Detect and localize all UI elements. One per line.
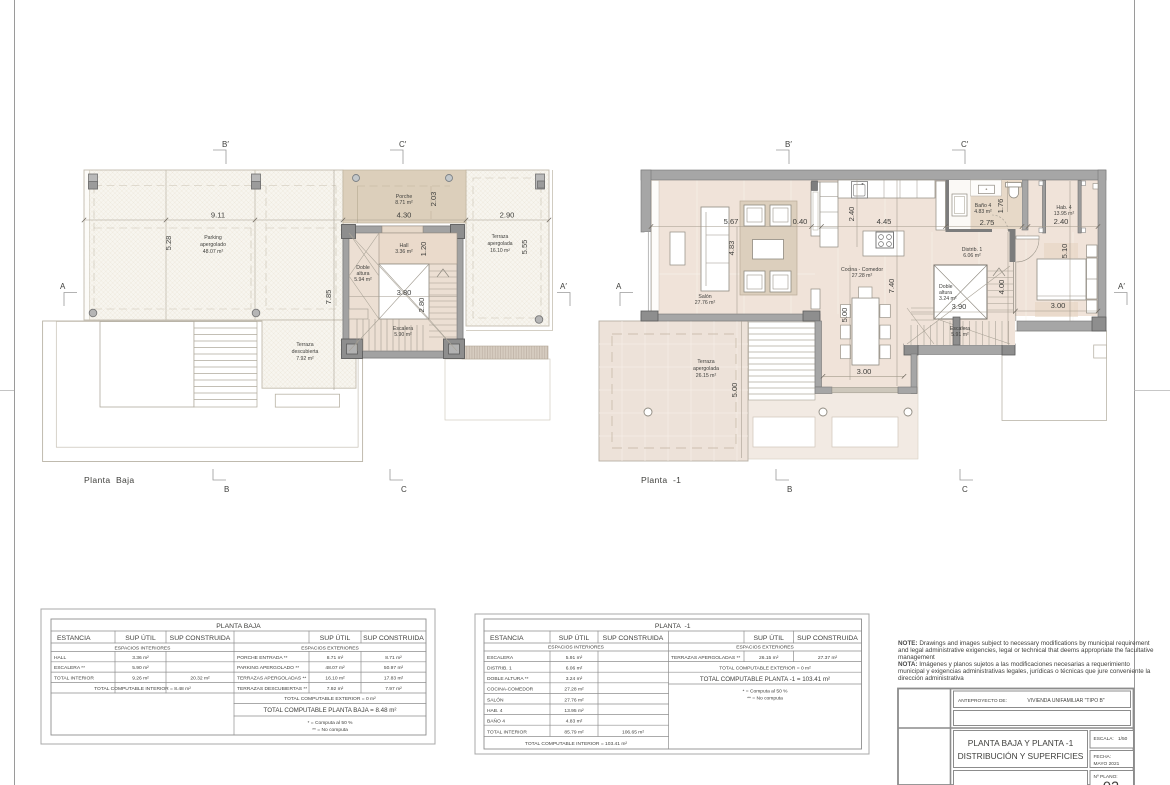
- svg-text:1.20: 1.20: [419, 242, 428, 257]
- svg-text:SALÓN: SALÓN: [487, 696, 504, 703]
- svg-text:BAÑO 4: BAÑO 4: [487, 718, 505, 725]
- svg-text:106.65 m²: 106.65 m²: [622, 729, 644, 735]
- svg-text:TOTAL COMPUTABLE EXTERIOR = 0: TOTAL COMPUTABLE EXTERIOR = 0 m²: [284, 696, 376, 702]
- svg-text:SUP ÚTIL: SUP ÚTIL: [320, 633, 351, 642]
- svg-text:PLANTA BAJA: PLANTA BAJA: [216, 623, 261, 630]
- svg-text:4.00: 4.00: [997, 280, 1006, 295]
- svg-text:ESPACIOS EXTERIORES: ESPACIOS EXTERIORES: [736, 645, 794, 651]
- svg-text:0.40: 0.40: [793, 217, 808, 226]
- svg-text:8.71 m²: 8.71 m²: [385, 655, 402, 661]
- svg-text:50.97 m²: 50.97 m²: [384, 665, 404, 671]
- svg-text:3.00: 3.00: [1051, 301, 1066, 310]
- svg-text:PLANTA BAJA Y PLANTA -1: PLANTA BAJA Y PLANTA -1: [968, 738, 1074, 748]
- svg-text:B: B: [787, 485, 792, 494]
- svg-text:3.24 m²: 3.24 m²: [566, 676, 583, 682]
- svg-text:DISTRIB. 1: DISTRIB. 1: [487, 666, 512, 672]
- svg-text:Terraza: Terraza: [697, 359, 714, 365]
- svg-text:Terraza: Terraza: [492, 234, 509, 240]
- svg-text:B: B: [224, 485, 229, 494]
- svg-text:1/50: 1/50: [1118, 736, 1128, 742]
- svg-text:DOBLE ALTURA **: DOBLE ALTURA **: [487, 676, 529, 682]
- svg-text:8.71 m²: 8.71 m²: [327, 655, 344, 661]
- svg-text:7.85: 7.85: [324, 290, 333, 305]
- svg-text:3.80: 3.80: [397, 288, 412, 297]
- svg-text:2.75: 2.75: [980, 218, 995, 227]
- svg-text:6.06 m²: 6.06 m²: [963, 253, 981, 259]
- svg-text:B′: B′: [785, 140, 792, 149]
- svg-text:02: 02: [1103, 780, 1119, 785]
- svg-text:85.79 m²: 85.79 m²: [564, 729, 584, 735]
- svg-text:TOTAL INTERIOR: TOTAL INTERIOR: [54, 675, 94, 681]
- svg-text:* = Computa al 50 %: * = Computa al 50 %: [743, 689, 789, 695]
- svg-text:A′: A′: [560, 282, 567, 291]
- svg-text:3.90: 3.90: [952, 302, 967, 311]
- svg-text:5.00: 5.00: [840, 308, 849, 323]
- svg-text:** = No computa: ** = No computa: [312, 727, 348, 733]
- svg-text:5.90 m²: 5.90 m²: [132, 665, 149, 671]
- svg-text:17.83 m²: 17.83 m²: [384, 675, 404, 681]
- svg-text:HAB. 4: HAB. 4: [487, 708, 503, 714]
- svg-text:SUP ÚTIL: SUP ÚTIL: [753, 633, 784, 642]
- svg-text:ANTEPROYECTO DE:: ANTEPROYECTO DE:: [958, 698, 1007, 704]
- svg-text:and legal administrative exige: and legal administrative exigencies, leg…: [898, 647, 1154, 654]
- svg-text:apergolado: apergolado: [200, 242, 226, 248]
- svg-text:5.10: 5.10: [1060, 244, 1069, 259]
- svg-text:TOTAL COMPUTABLE PLANTA -1 = 1: TOTAL COMPUTABLE PLANTA -1 = 103.41 m²: [700, 676, 830, 683]
- svg-text:1.76: 1.76: [996, 199, 1005, 214]
- svg-text:ESCALA:: ESCALA:: [1094, 736, 1114, 742]
- svg-text:apergolada: apergolada: [693, 366, 719, 372]
- svg-text:16.10 m²: 16.10 m²: [490, 248, 510, 254]
- svg-text:** = No computa: ** = No computa: [747, 696, 783, 702]
- svg-text:6.06 m²: 6.06 m²: [566, 666, 583, 672]
- svg-text:9.26 m²: 9.26 m²: [132, 675, 149, 681]
- svg-text:TOTAL COMPUTABLE PLANTA BAJA =: TOTAL COMPUTABLE PLANTA BAJA = 8.48 m²: [264, 707, 397, 714]
- svg-text:8.71 m²: 8.71 m²: [395, 200, 413, 206]
- svg-text:2.03: 2.03: [429, 192, 438, 207]
- svg-text:TERRAZAS DESCUBIERTAS **: TERRAZAS DESCUBIERTAS **: [237, 686, 307, 692]
- svg-text:TOTAL COMPUTABLE INTERIOR = 8.: TOTAL COMPUTABLE INTERIOR = 8.48 m²: [94, 686, 191, 692]
- svg-text:ESTANCIA: ESTANCIA: [490, 635, 524, 642]
- svg-text:* = Computa al 50 %: * = Computa al 50 %: [308, 720, 354, 726]
- svg-text:TOTAL COMPUTABLE INTERIOR = 10: TOTAL COMPUTABLE INTERIOR = 103.41 m²: [525, 741, 628, 747]
- svg-text:7.92 m²: 7.92 m²: [296, 356, 314, 362]
- svg-text:3.00: 3.00: [857, 367, 872, 376]
- svg-text:Planta Baja: Planta Baja: [84, 475, 135, 485]
- svg-text:Planta -1: Planta -1: [641, 475, 681, 485]
- svg-text:5.00: 5.00: [730, 383, 739, 398]
- svg-text:5.55: 5.55: [520, 240, 529, 255]
- svg-text:A′: A′: [1118, 282, 1125, 291]
- svg-text:TERRAZAS APERGOLADAS **: TERRAZAS APERGOLADAS **: [671, 655, 740, 661]
- svg-text:48.07 m²: 48.07 m²: [325, 665, 345, 671]
- svg-text:ESCALERA: ESCALERA: [487, 655, 514, 661]
- svg-text:3.36 m²: 3.36 m²: [395, 249, 413, 255]
- svg-text:9.11: 9.11: [211, 211, 225, 220]
- svg-text:A: A: [616, 282, 622, 291]
- svg-text:5.91 m²: 5.91 m²: [566, 655, 583, 661]
- svg-text:PARKING APERGOLADO **: PARKING APERGOLADO **: [237, 665, 299, 671]
- svg-text:ESPACIOS INTERIORES: ESPACIOS INTERIORES: [115, 646, 172, 652]
- svg-text:C: C: [962, 485, 968, 494]
- svg-text:4.45: 4.45: [877, 217, 892, 226]
- svg-text:PLANTA -1: PLANTA -1: [655, 623, 691, 630]
- svg-text:27.37 m²: 27.37 m²: [818, 655, 838, 661]
- svg-text:SUP ÚTIL: SUP ÚTIL: [559, 633, 590, 642]
- svg-text:SUP ÚTIL: SUP ÚTIL: [125, 633, 156, 642]
- svg-text:ESTANCIA: ESTANCIA: [57, 635, 91, 642]
- svg-text:municipal y exigencias adminis: municipal y exigencias administrativas l…: [898, 668, 1151, 675]
- svg-text:27.28 m²: 27.28 m²: [564, 687, 584, 693]
- svg-text:ESPACIOS EXTERIORES: ESPACIOS EXTERIORES: [301, 646, 359, 652]
- svg-text:7.97 m²: 7.97 m²: [385, 686, 402, 692]
- svg-text:SUP CONSTRUIDA: SUP CONSTRUIDA: [603, 635, 664, 642]
- svg-text:48.07 m²: 48.07 m²: [203, 249, 224, 255]
- svg-text:SUP CONSTRUIDA: SUP CONSTRUIDA: [170, 635, 231, 642]
- svg-text:26.15 m²: 26.15 m²: [696, 373, 717, 379]
- svg-text:B′: B′: [222, 140, 229, 149]
- svg-text:27.76 m²: 27.76 m²: [695, 300, 716, 306]
- svg-text:5.91 m²: 5.91 m²: [951, 332, 969, 338]
- svg-text:7.92 m²: 7.92 m²: [327, 686, 344, 692]
- svg-text:16.10 m²: 16.10 m²: [325, 675, 345, 681]
- svg-text:management: management: [898, 654, 935, 661]
- svg-text:MAYO 2021: MAYO 2021: [1094, 761, 1120, 767]
- svg-text:4.30: 4.30: [397, 211, 412, 220]
- svg-text:4.83: 4.83: [727, 241, 736, 256]
- svg-text:2.40: 2.40: [847, 207, 856, 222]
- svg-text:C′: C′: [961, 140, 969, 149]
- svg-text:4.83 m²: 4.83 m²: [974, 209, 992, 215]
- svg-text:27.28 m²: 27.28 m²: [852, 273, 873, 279]
- svg-text:C′: C′: [399, 140, 407, 149]
- svg-text:descubierta: descubierta: [292, 349, 319, 355]
- svg-text:ESPACIOS INTERIORES: ESPACIOS INTERIORES: [548, 645, 605, 651]
- svg-text:26.15 m²: 26.15 m²: [759, 655, 779, 661]
- svg-text:VIVIENDA UNIFAMILIAR "TIPO B": VIVIENDA UNIFAMILIAR "TIPO B": [1027, 698, 1104, 704]
- svg-text:4.83 m²: 4.83 m²: [566, 719, 583, 725]
- svg-text:COCINA-COMEDOR: COCINA-COMEDOR: [487, 687, 534, 693]
- svg-text:C: C: [401, 485, 407, 494]
- svg-text:2.40: 2.40: [1054, 217, 1069, 226]
- svg-text:13.95 m²: 13.95 m²: [564, 708, 584, 714]
- svg-text:A: A: [60, 282, 66, 291]
- svg-text:7.40: 7.40: [887, 279, 896, 294]
- svg-text:NOTA: Imágenes y planos sujeto: NOTA: Imágenes y planos sujetos a las mo…: [898, 661, 1130, 668]
- svg-text:TERRAZAS APERGOLADAS **: TERRAZAS APERGOLADAS **: [237, 675, 306, 681]
- svg-text:PORCHE ENTRADA **: PORCHE ENTRADA **: [237, 655, 288, 661]
- svg-text:5.67: 5.67: [724, 217, 739, 226]
- svg-text:3.36 m²: 3.36 m²: [132, 655, 149, 661]
- svg-text:Terraza: Terraza: [296, 342, 313, 348]
- svg-text:SUP CONSTRUIDA: SUP CONSTRUIDA: [363, 635, 424, 642]
- svg-text:apergolada: apergolada: [487, 241, 512, 247]
- svg-text:dirección administrativa: dirección administrativa: [898, 675, 964, 682]
- svg-text:20.32 m²: 20.32 m²: [190, 675, 210, 681]
- svg-text:Parking: Parking: [204, 235, 222, 241]
- svg-text:FECHA:: FECHA:: [1094, 754, 1112, 760]
- svg-text:5.90 m²: 5.90 m²: [394, 332, 412, 338]
- svg-text:TOTAL INTERIOR: TOTAL INTERIOR: [487, 729, 527, 735]
- svg-text:SUP CONSTRUIDA: SUP CONSTRUIDA: [797, 635, 858, 642]
- svg-text:TOTAL COMPUTABLE EXTERIOR = 0: TOTAL COMPUTABLE EXTERIOR = 0 m²: [719, 666, 811, 672]
- svg-text:ESCALERA **: ESCALERA **: [54, 665, 85, 671]
- svg-text:5.28: 5.28: [164, 236, 173, 251]
- svg-text:5.94 m²: 5.94 m²: [354, 277, 372, 283]
- svg-text:NOTE: Drawings and images subj: NOTE: Drawings and images subject to nec…: [898, 640, 1150, 647]
- svg-text:HALL: HALL: [54, 655, 67, 661]
- svg-text:DISTRIBUCIÓN Y SUPERFICIES: DISTRIBUCIÓN Y SUPERFICIES: [958, 751, 1084, 761]
- svg-text:2.90: 2.90: [500, 211, 515, 220]
- svg-text:2.80: 2.80: [417, 298, 426, 313]
- svg-text:27.76 m²: 27.76 m²: [564, 697, 584, 703]
